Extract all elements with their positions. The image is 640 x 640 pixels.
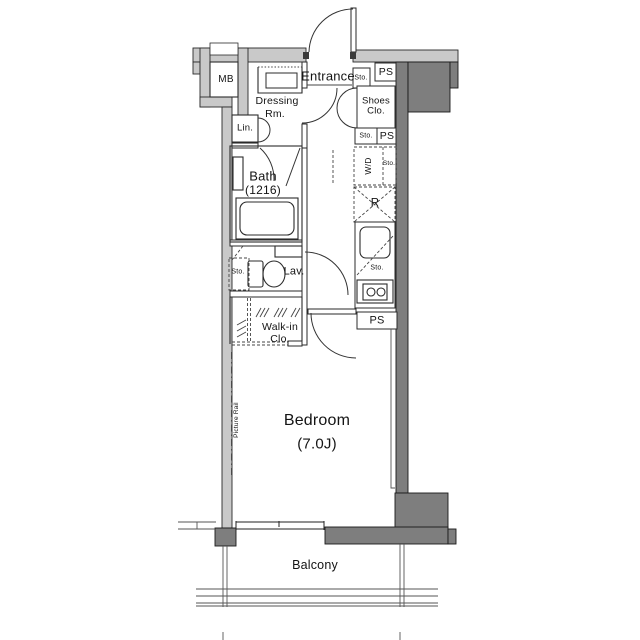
pipe-shaft-mid-label: PS [380, 131, 394, 142]
mb-label: MB [218, 75, 233, 85]
bath-size-label: (1216) [245, 184, 281, 196]
kitchen [355, 222, 397, 329]
bedroom-size-label: (7.0J) [297, 437, 337, 452]
walkin-closet-label-2: Clo. [270, 334, 289, 345]
storage-mid-label: Sto. [359, 133, 372, 140]
storage-wd-label: Sto. [383, 161, 395, 168]
walkin-closet-label-1: Walk-in [262, 322, 298, 333]
walls-structural [215, 62, 458, 546]
storage-kitchen-label: Sto. [370, 265, 383, 272]
refrigerator-label: R [371, 198, 380, 210]
vanity-sink [266, 73, 297, 88]
door-jamb-right [350, 52, 356, 59]
dressing-room-label-1: Dressing [255, 96, 298, 107]
shoes-closet-label-2: Clo. [367, 106, 385, 116]
bath-door-leaf [286, 148, 300, 186]
bedroom-lines [232, 329, 396, 488]
shoes-closet-doors [337, 88, 357, 128]
picture-rail-label: Picture Rail [234, 402, 241, 438]
linen-door-arc-top [258, 118, 270, 130]
floorplan-linework [0, 0, 640, 640]
lav-counter [275, 246, 302, 257]
pipe-shaft-bottom-label: PS [369, 316, 384, 327]
dressing-room-label-2: Rm. [265, 109, 285, 120]
floorplan: MB Entrance Sto. PS Shoes Clo. Sto. PS W… [0, 0, 640, 640]
balcony-window [236, 521, 324, 530]
service-column [333, 63, 396, 222]
pipe-shaft-top-label: PS [379, 67, 393, 78]
bedroom-door-leaf [308, 309, 356, 314]
balcony-label: Balcony [292, 559, 338, 572]
linen-label: Lin. [237, 123, 253, 133]
bedroom-door [308, 309, 356, 358]
walls-exterior [193, 43, 458, 528]
entrance-label: Entrance [301, 70, 355, 83]
bedroom-door-arc [311, 313, 356, 358]
bathtub-inner [240, 202, 294, 235]
washer-dryer-label: W/D [364, 157, 373, 174]
lav-door-arc [305, 252, 348, 295]
bath-label: Bath [249, 170, 277, 183]
vanity-counter [258, 67, 302, 93]
toilet-tank [248, 261, 263, 287]
storage-entrance-label: Sto. [354, 75, 367, 82]
toilet-bowl [263, 261, 285, 287]
storage-lav-label: Sto. [231, 269, 244, 276]
bedroom-label: Bedroom [284, 413, 350, 429]
bathtub-outer [236, 198, 298, 239]
entrance-door-arc [309, 9, 353, 52]
lavatory-label: Lav. [284, 267, 305, 278]
bath-counter [233, 157, 243, 190]
linen-door-arc-bottom [258, 130, 270, 142]
door-jamb-left [303, 52, 309, 59]
dressing-door-arc [302, 88, 337, 123]
entrance-door-leaf [351, 8, 356, 52]
